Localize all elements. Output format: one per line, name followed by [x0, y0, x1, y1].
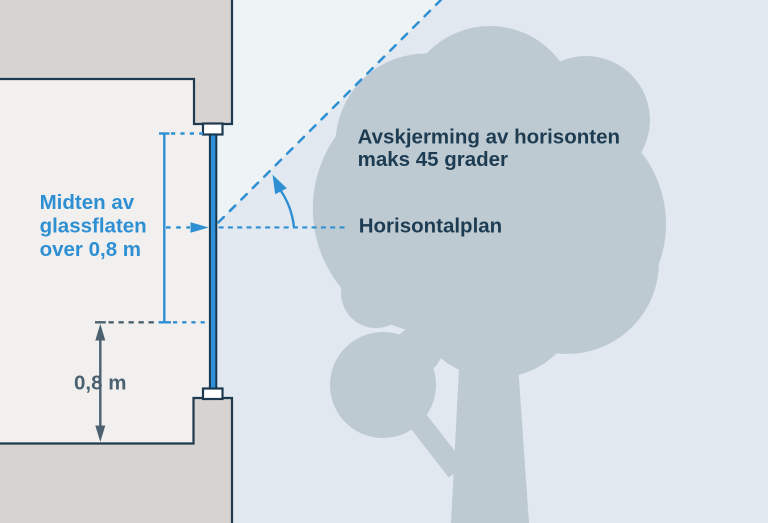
svg-text:0,8 m: 0,8 m [74, 372, 126, 395]
svg-text:over 0,8 m: over 0,8 m [40, 238, 141, 261]
svg-text:Horisontalplan: Horisontalplan [359, 215, 503, 238]
svg-text:Avskjerming av horisonten: Avskjerming av horisonten [358, 125, 620, 148]
svg-text:glassflaten: glassflaten [40, 214, 147, 237]
svg-text:Midten av: Midten av [40, 191, 135, 214]
svg-text:maks 45 grader: maks 45 grader [358, 148, 508, 171]
